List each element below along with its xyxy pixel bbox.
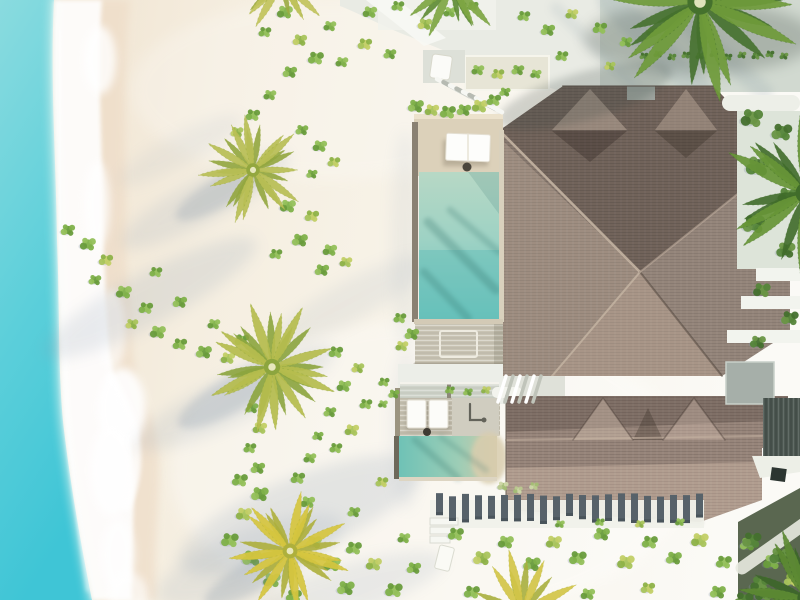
pool-coping: [414, 319, 503, 324]
shower-pad: [452, 398, 499, 436]
fence-slat-shade: [436, 512, 443, 515]
pool-coping: [399, 477, 497, 481]
lounger: [429, 54, 452, 81]
fence-slat: [553, 496, 560, 520]
fence-slat-shade: [501, 518, 508, 521]
deck-item: [423, 428, 431, 436]
fence-slat: [527, 494, 534, 521]
deck-item: [463, 163, 472, 172]
lounger: [407, 400, 426, 428]
pool-coping: [499, 130, 504, 322]
fence-slat: [657, 497, 664, 523]
fence-slat: [670, 495, 677, 523]
fence-slat: [566, 494, 573, 516]
fence-slat: [540, 496, 547, 524]
fence-slat-shade: [462, 519, 469, 522]
fence-slat: [618, 493, 625, 521]
fence-slat-shade: [618, 518, 625, 521]
wall-box: [770, 467, 787, 482]
foam-film: [59, 30, 60, 300]
fence-slat: [449, 496, 456, 521]
railing: [722, 95, 800, 111]
fence-slat-shade: [696, 515, 703, 518]
lounger: [429, 400, 448, 428]
pergola-edge: [400, 382, 499, 385]
palm-crown-highlight: [287, 548, 294, 555]
foam-swash: [84, 26, 116, 94]
fence-slat: [501, 495, 508, 521]
fence-slat-shade: [475, 516, 482, 519]
utility-box: [726, 362, 774, 404]
fence-slat-shade: [514, 518, 521, 521]
fence-slat: [683, 495, 690, 523]
fence-slat: [696, 494, 703, 518]
fence-slat-shade: [605, 518, 612, 521]
fence-slat: [514, 495, 521, 521]
fence-slat-shade: [527, 518, 534, 521]
fence-slat-shade: [553, 517, 560, 520]
fence-slat: [436, 493, 443, 515]
aerial-beach-resort-photo: [0, 0, 800, 600]
fence-slat: [488, 496, 495, 519]
wall-step: [741, 296, 800, 309]
fence-slat-shade: [657, 520, 664, 523]
fence-slat-shade: [644, 519, 651, 522]
deck-shade: [494, 324, 503, 364]
fence-slat-shade: [449, 518, 456, 521]
slat-box-lines: [763, 398, 800, 456]
fence-slat-shade: [488, 516, 495, 519]
pool-sand-shelf: [471, 432, 507, 484]
foam-swash: [84, 161, 110, 249]
fence-slat: [475, 495, 482, 519]
shower-head: [482, 418, 487, 423]
scene-svg: [0, 0, 800, 600]
fence-slat: [579, 495, 586, 519]
wall-step: [756, 268, 800, 281]
fence-slat: [644, 496, 651, 522]
palm-crown-highlight: [250, 167, 256, 173]
fence-slat-shade: [566, 513, 573, 516]
fence-slat: [605, 494, 612, 521]
pool-edge: [412, 122, 418, 322]
palm-crown-highlight: [268, 363, 275, 370]
pool-edge: [394, 436, 399, 479]
fence-slat-shade: [540, 521, 547, 524]
fence-slat-shade: [579, 516, 586, 519]
fence-slat: [462, 494, 469, 522]
fence-slat: [631, 493, 638, 522]
